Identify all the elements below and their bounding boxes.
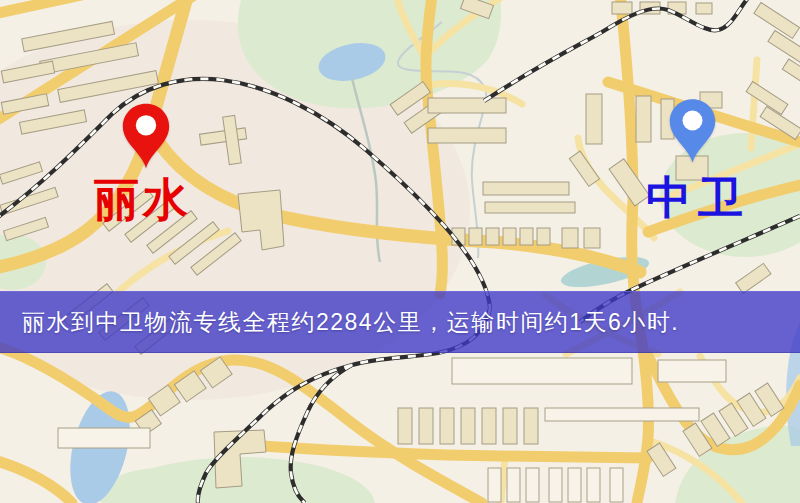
map-view[interactable]: 丽水 中卫 丽水到中卫物流专线全程约2284公里，运输时间约1天6小时. bbox=[0, 0, 800, 503]
map-background bbox=[0, 0, 800, 503]
origin-city-label: 丽水 bbox=[94, 178, 192, 223]
destination-city-label: 中卫 bbox=[646, 176, 750, 221]
destination-pin-icon[interactable] bbox=[667, 97, 718, 164]
origin-pin-icon[interactable] bbox=[120, 101, 172, 170]
route-info-text: 丽水到中卫物流专线全程约2284公里，运输时间约1天6小时. bbox=[22, 307, 679, 338]
route-info-banner: 丽水到中卫物流专线全程约2284公里，运输时间约1天6小时. bbox=[0, 291, 800, 353]
